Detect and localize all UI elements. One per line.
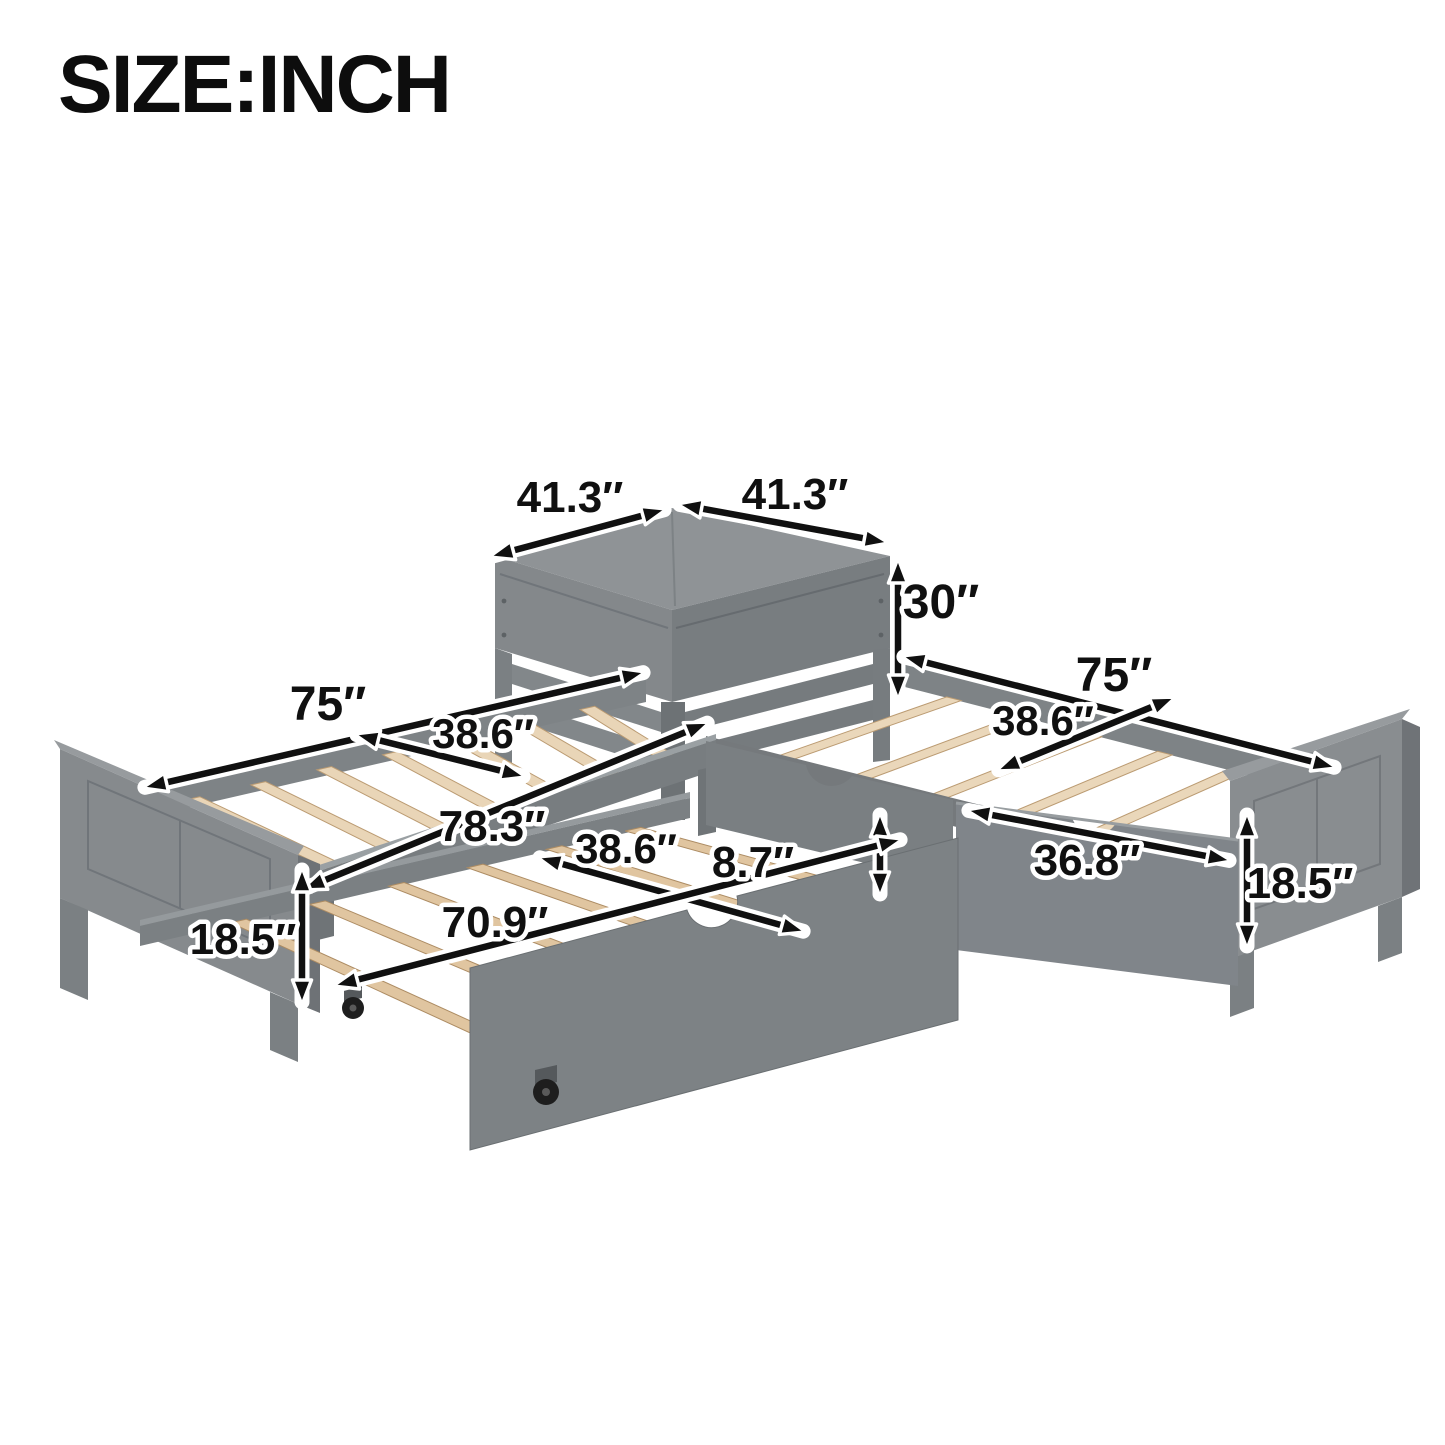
dim-label-trundle-width: 38.6″ [575, 825, 677, 872]
caster-hub [350, 1005, 357, 1012]
furniture-illustration [54, 508, 1420, 1150]
screw-dot [879, 599, 884, 604]
dim-label-left-bed-length: 75″ [290, 678, 366, 731]
dim-label-overall-length: 78.3″ [439, 802, 546, 851]
screw-dot [502, 599, 507, 604]
dim-label-table-top-right: 41.3″ [742, 470, 849, 519]
dimension-diagram-page: SIZE:INCH 41.3″ 41.3″ 30″ 75″ 38.6″ 75″ … [0, 0, 1445, 1445]
right-footboard-leg-right [1378, 897, 1402, 962]
dim-label-trundle-length: 70.9″ [442, 898, 549, 947]
dim-label-right-bed-length: 75″ [1076, 649, 1152, 702]
dim-label-table-top-left: 41.3″ [517, 473, 624, 522]
caster-hub [542, 1088, 550, 1096]
dim-label-trundle-front-height: 8.7″ [712, 838, 794, 887]
dim-label-drawer-front-width: 36.8″ [1034, 836, 1141, 885]
left-footboard-leg-right [270, 992, 298, 1062]
screw-dot [879, 633, 884, 638]
dim-label-right-bed-width: 38.6″ [992, 697, 1094, 744]
left-footboard-leg-left [60, 898, 88, 1000]
table-leg-right [873, 648, 890, 762]
dim-label-left-bed-width: 38.6″ [432, 710, 534, 757]
size-unit-title: SIZE:INCH [58, 39, 450, 130]
dim-label-left-footboard-height: 18.5″ [190, 915, 297, 964]
dim-label-table-height: 30″ [903, 576, 979, 629]
bed-dimension-diagram: SIZE:INCH 41.3″ 41.3″ 30″ 75″ 38.6″ 75″ … [0, 0, 1445, 1445]
right-footboard-side-return [1402, 719, 1420, 897]
dim-label-right-footboard-height: 18.5″ [1247, 859, 1354, 908]
screw-dot [502, 633, 507, 638]
